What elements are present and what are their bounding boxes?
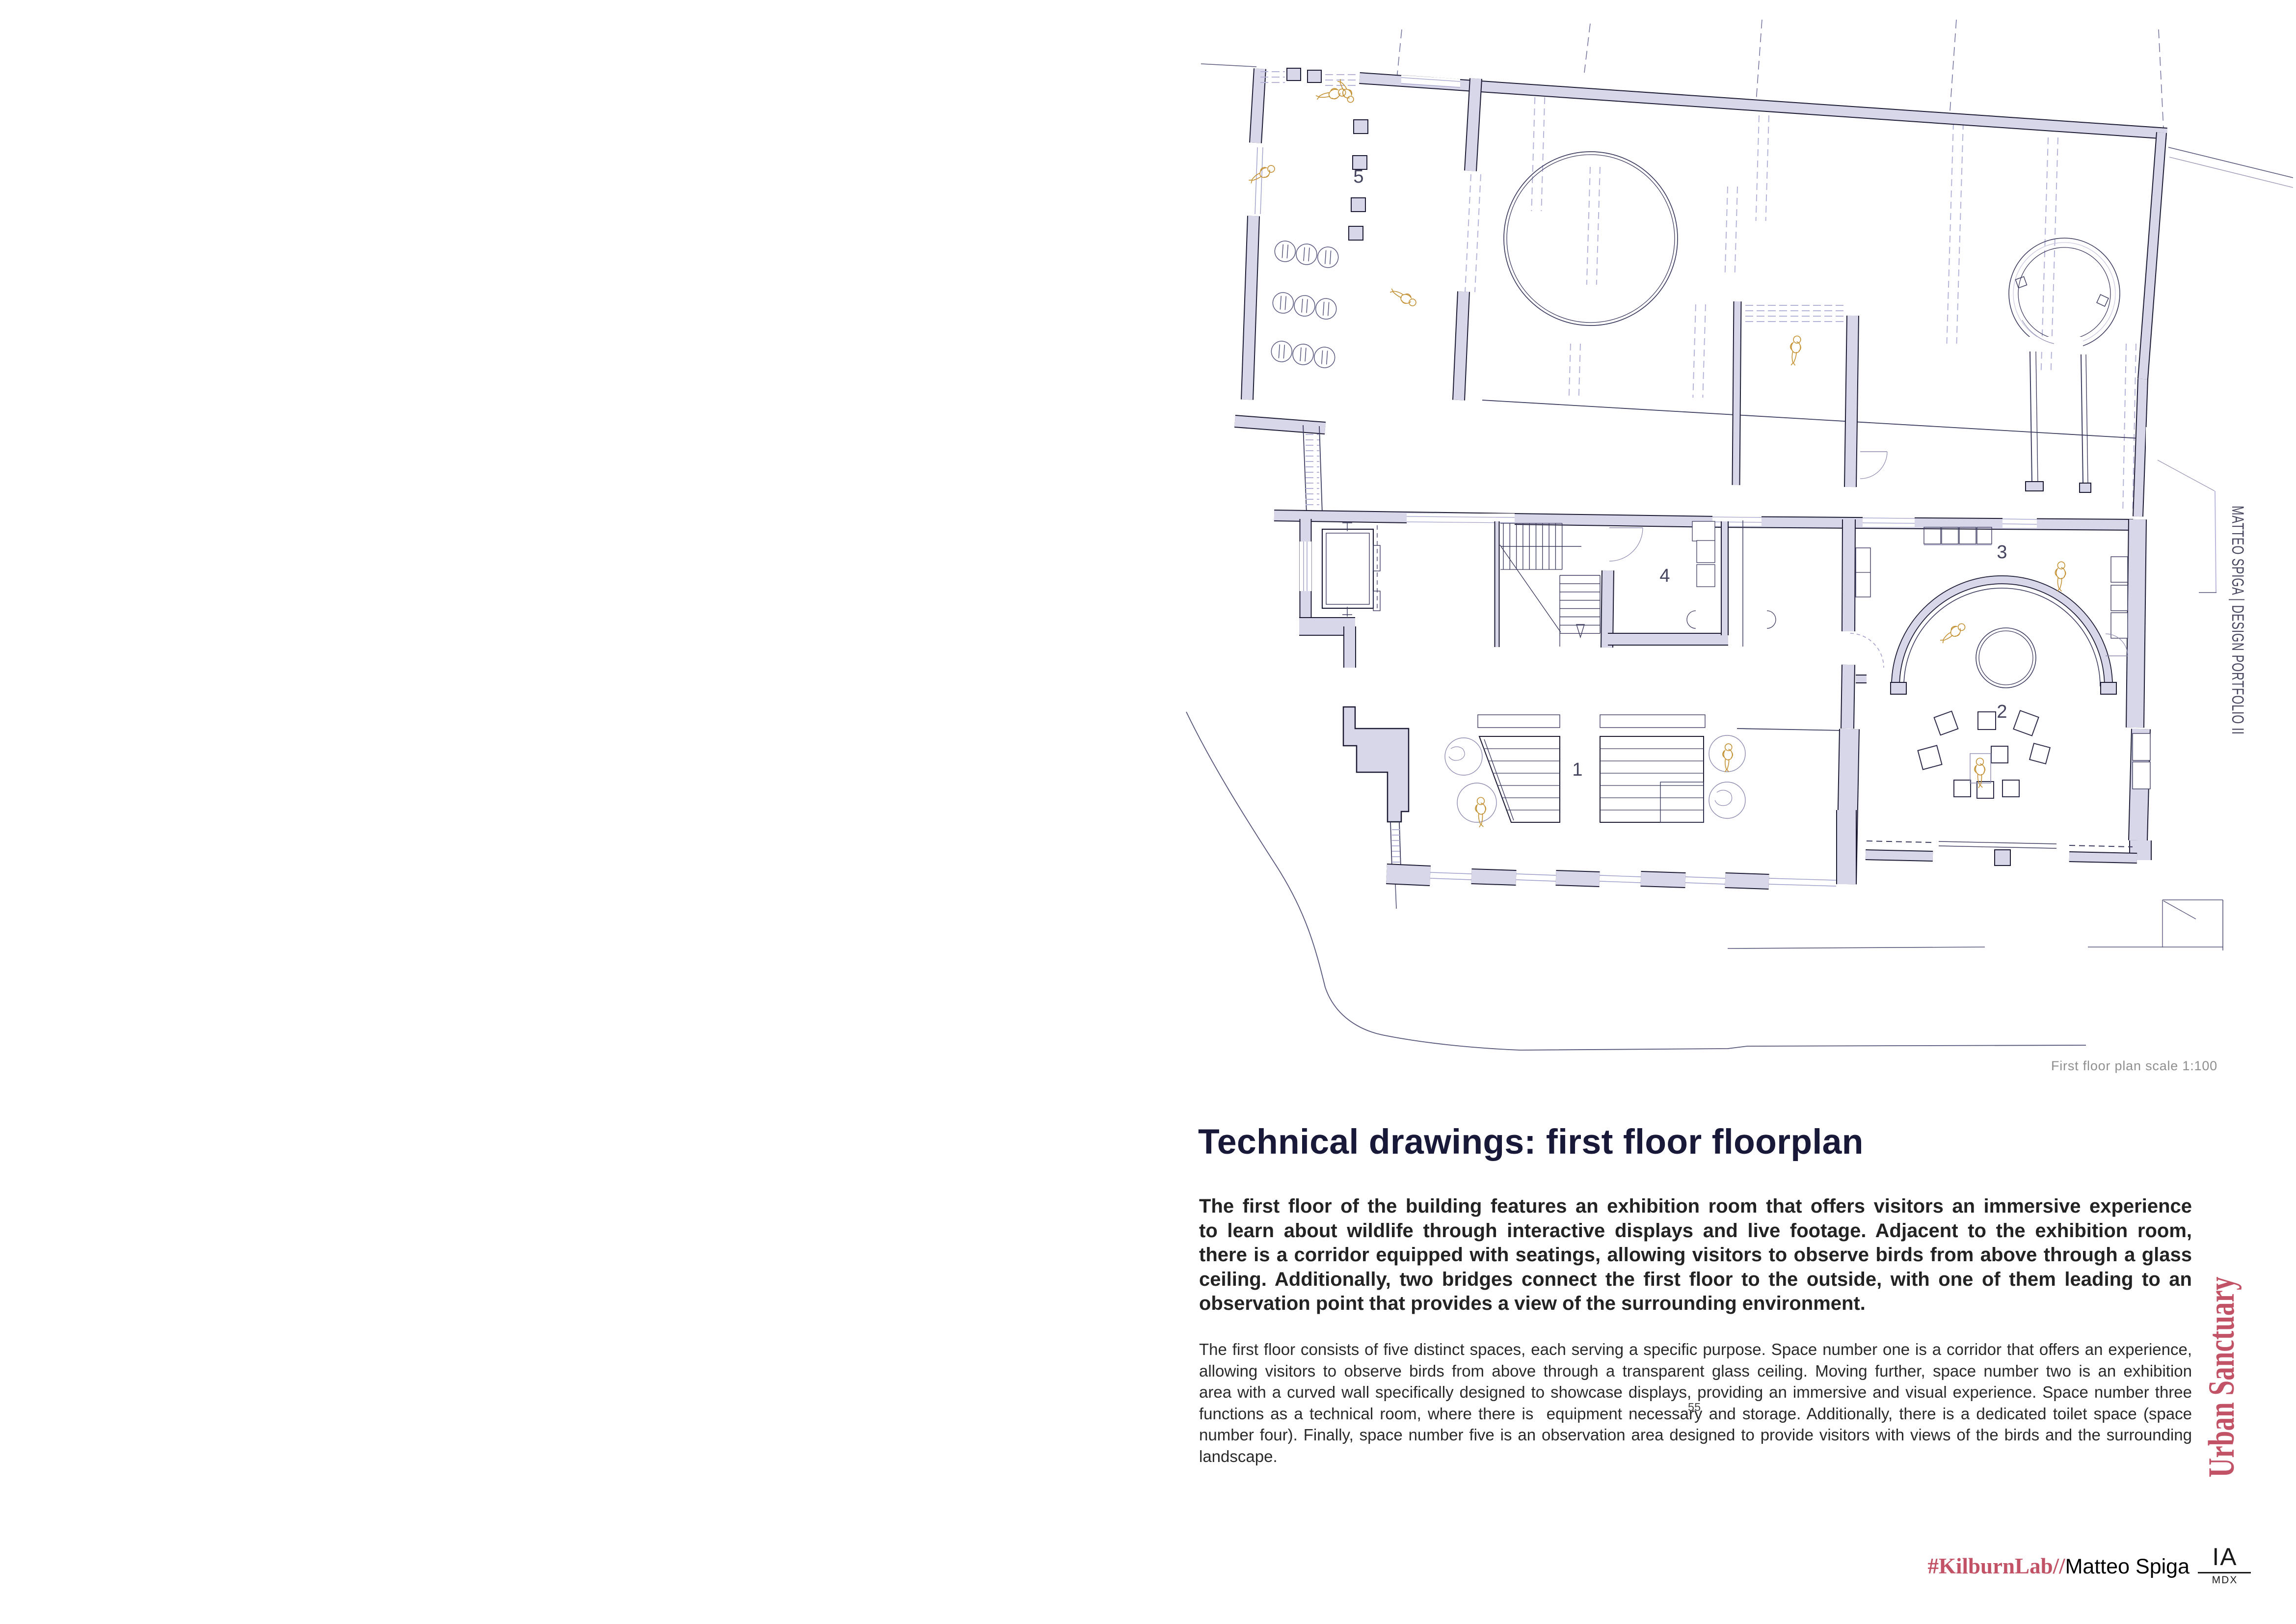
svg-text:1: 1 (1572, 759, 1582, 780)
svg-text:4: 4 (1659, 566, 1670, 586)
svg-text:5: 5 (1353, 166, 1363, 187)
svg-text:2: 2 (1997, 702, 2007, 722)
svg-text:3: 3 (1997, 542, 2007, 563)
